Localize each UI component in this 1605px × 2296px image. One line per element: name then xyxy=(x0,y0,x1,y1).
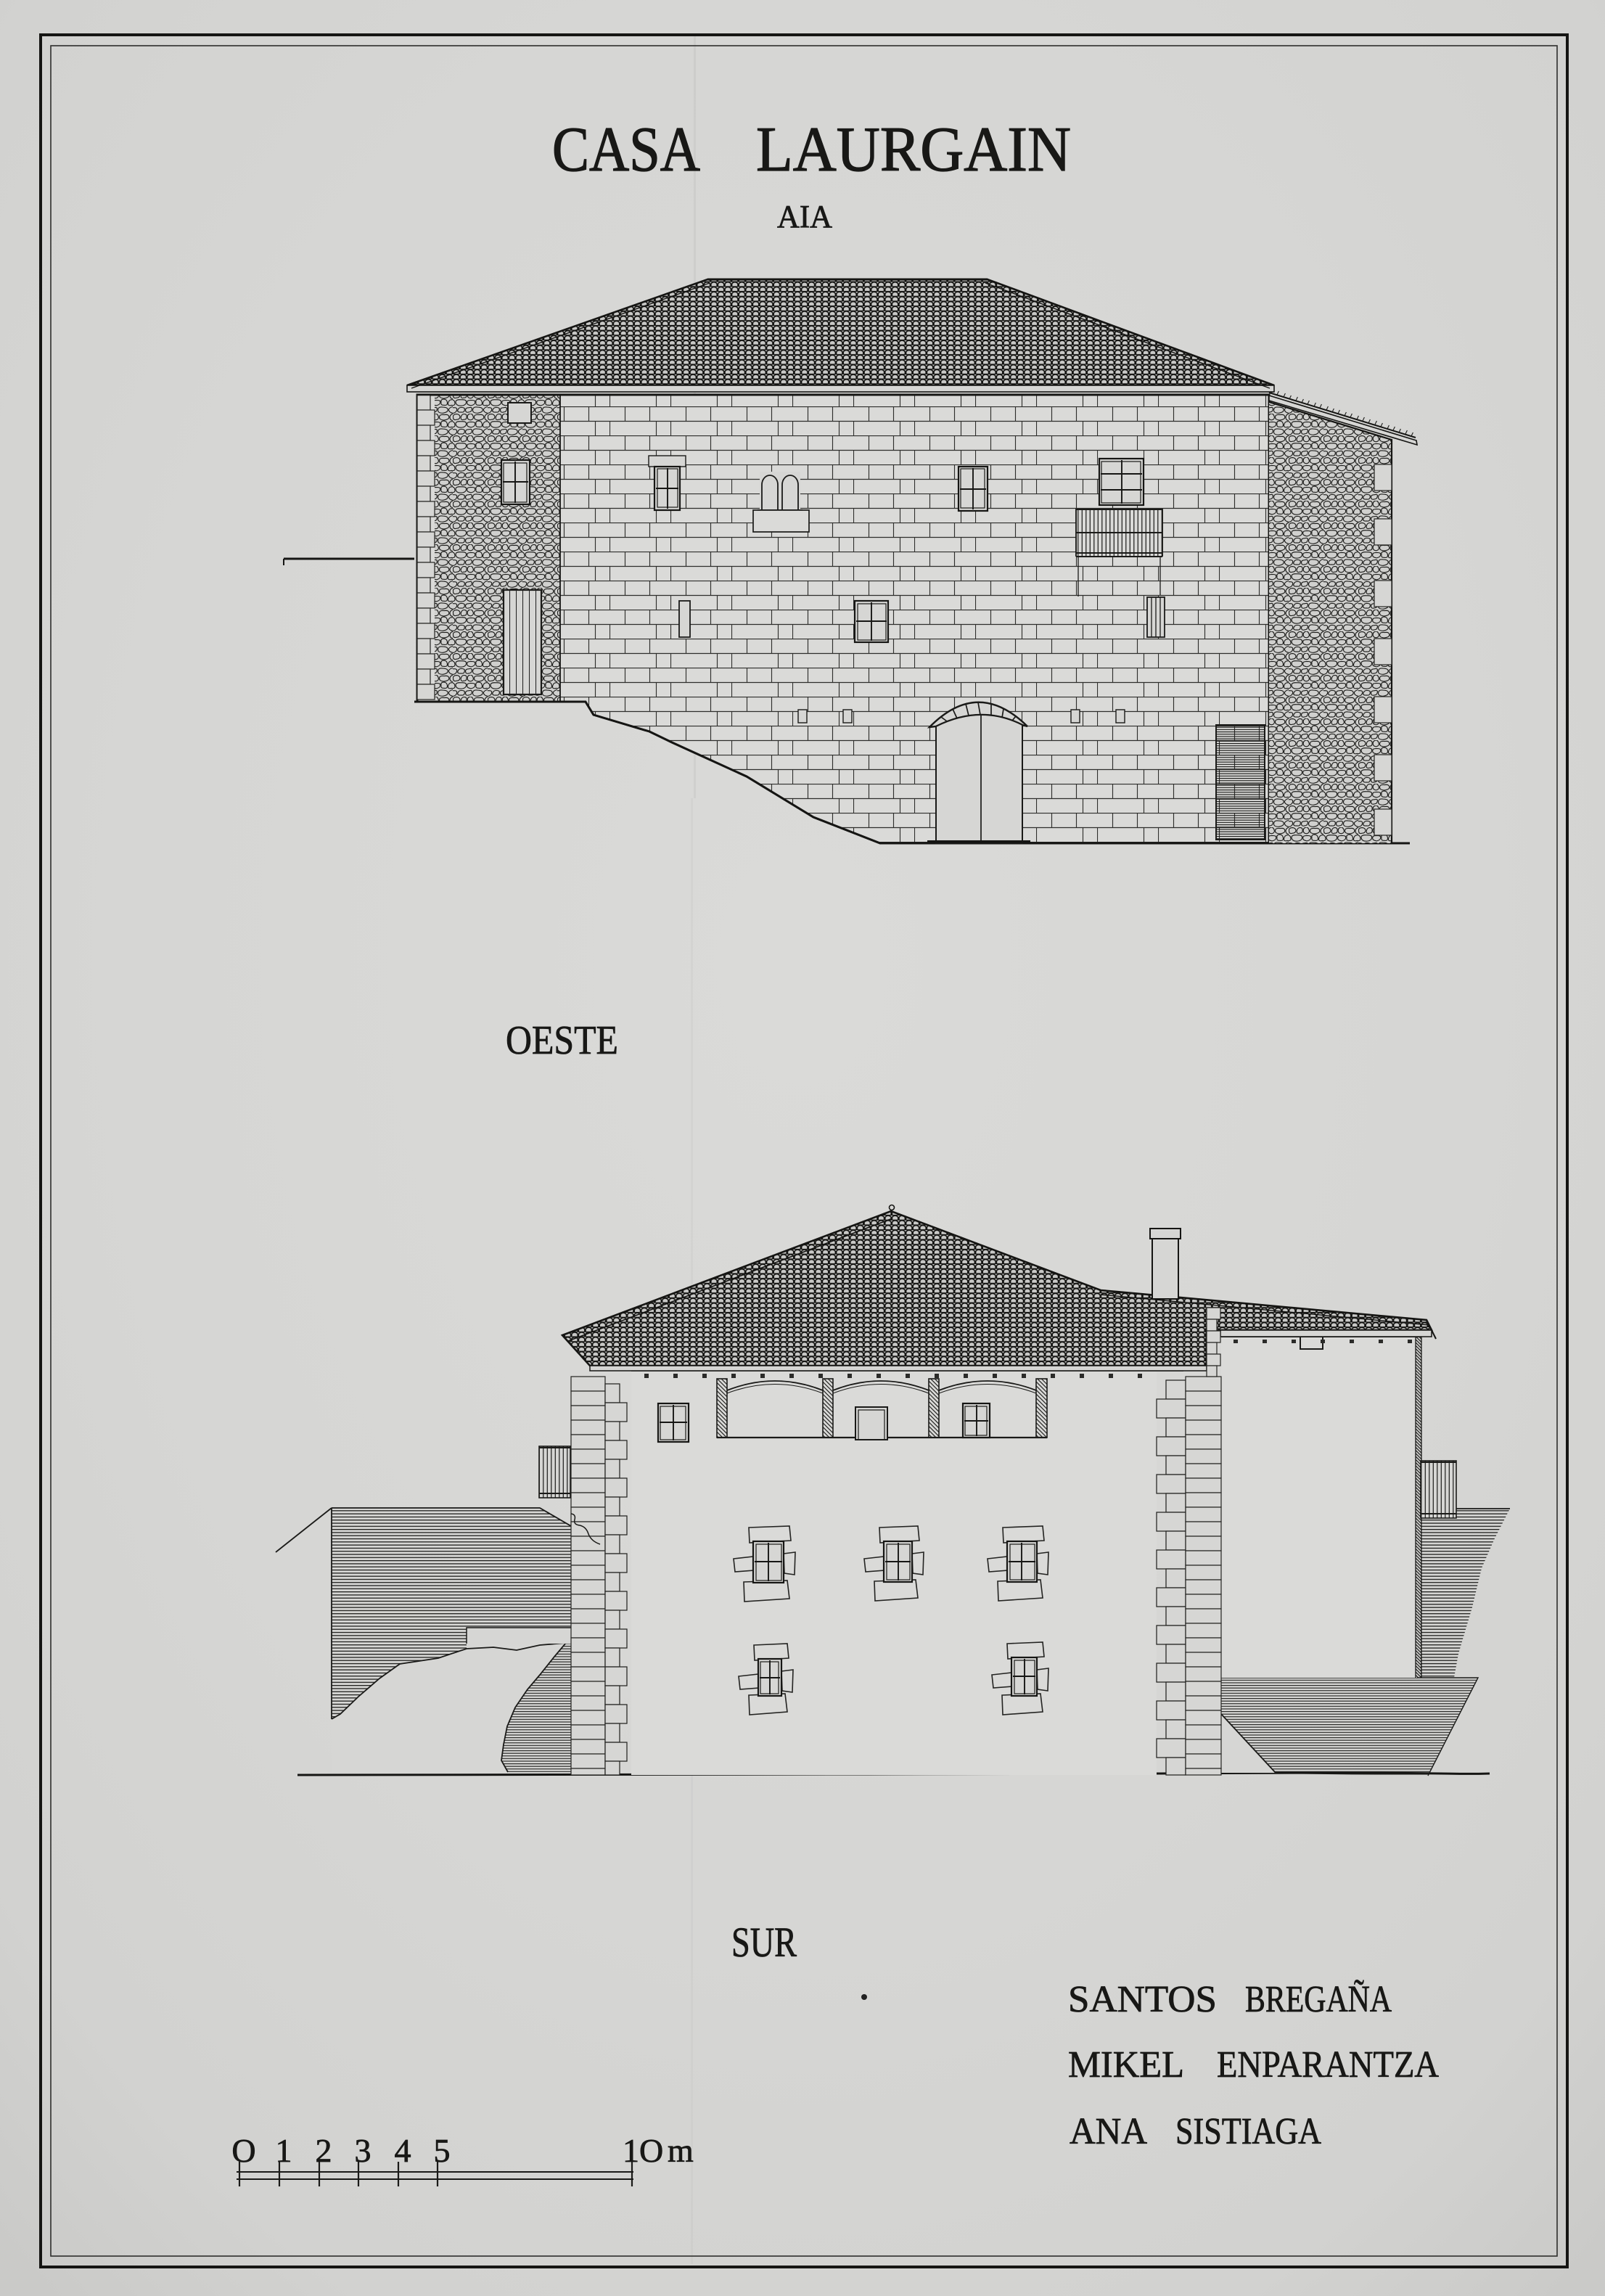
svg-text:O: O xyxy=(231,2132,255,2169)
svg-text:3: 3 xyxy=(355,2132,372,2169)
svg-text:SUR: SUR xyxy=(731,1919,797,1966)
svg-text:LAURGAIN: LAURGAIN xyxy=(756,115,1071,185)
svg-text:AIA: AIA xyxy=(777,199,832,234)
svg-text:MIKEL: MIKEL xyxy=(1068,2044,1184,2086)
svg-text:4: 4 xyxy=(395,2132,411,2169)
svg-text:1O: 1O xyxy=(623,2132,663,2169)
svg-text:ENPARANTZA: ENPARANTZA xyxy=(1217,2044,1439,2086)
svg-text:5: 5 xyxy=(434,2132,451,2169)
svg-text:CASA: CASA xyxy=(552,115,700,185)
svg-text:2: 2 xyxy=(316,2132,332,2169)
svg-text:m: m xyxy=(668,2132,694,2169)
svg-text:BREGAÑA: BREGAÑA xyxy=(1245,1979,1392,2020)
svg-text:SANTOS: SANTOS xyxy=(1068,1979,1217,2020)
svg-text:SISTIAGA: SISTIAGA xyxy=(1175,2111,1321,2152)
svg-text:1: 1 xyxy=(276,2132,292,2169)
svg-text:OESTE: OESTE xyxy=(506,1018,618,1063)
svg-text:ANA: ANA xyxy=(1070,2111,1147,2152)
